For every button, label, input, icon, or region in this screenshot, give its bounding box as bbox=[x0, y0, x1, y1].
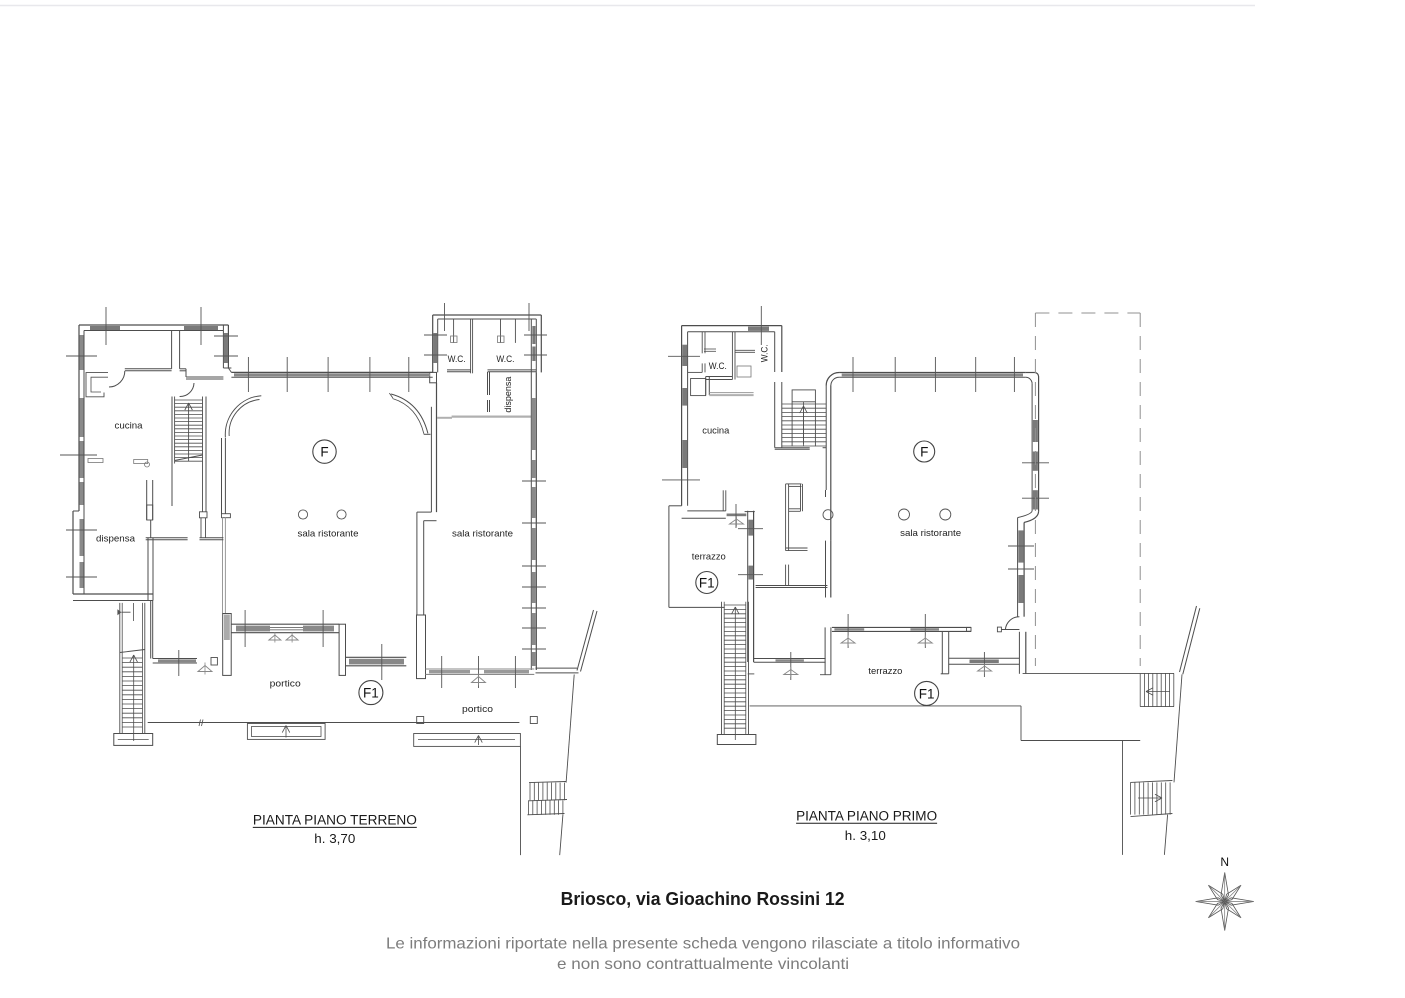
svg-text:N: N bbox=[1220, 855, 1229, 869]
svg-text:sala ristorante: sala ristorante bbox=[900, 528, 961, 539]
svg-text:h. 3,70: h. 3,70 bbox=[314, 831, 355, 846]
svg-text:portico: portico bbox=[270, 678, 301, 689]
svg-text:F: F bbox=[320, 445, 328, 460]
svg-text:W.C.: W.C. bbox=[496, 354, 514, 364]
svg-text:W.C.: W.C. bbox=[760, 344, 770, 362]
svg-text:sala ristorante: sala ristorante bbox=[298, 529, 359, 540]
svg-text:PIANTA PIANO TERRENO: PIANTA PIANO TERRENO bbox=[253, 813, 417, 828]
svg-text:PIANTA PIANO PRIMO: PIANTA PIANO PRIMO bbox=[796, 808, 937, 823]
svg-text:e non sono contrattualmente vi: e non sono contrattualmente vincolanti bbox=[557, 956, 849, 973]
svg-text:cucina: cucina bbox=[115, 421, 144, 432]
svg-text:cucina: cucina bbox=[702, 425, 730, 436]
svg-text:terrazzo: terrazzo bbox=[868, 666, 902, 677]
svg-text:F1: F1 bbox=[699, 576, 715, 591]
svg-text:F1: F1 bbox=[919, 686, 935, 701]
svg-text:terrazzo: terrazzo bbox=[692, 551, 726, 562]
svg-text:W.C.: W.C. bbox=[448, 354, 466, 364]
svg-text:dispensa: dispensa bbox=[96, 534, 136, 545]
svg-text:W.C.: W.C. bbox=[709, 361, 727, 371]
svg-text:Briosco, via Gioachino Rossini: Briosco, via Gioachino Rossini 12 bbox=[561, 889, 845, 909]
svg-text:F: F bbox=[920, 445, 928, 460]
svg-text:h. 3,10: h. 3,10 bbox=[845, 828, 886, 843]
svg-text:sala ristorante: sala ristorante bbox=[452, 529, 513, 540]
svg-text:F1: F1 bbox=[363, 686, 379, 701]
svg-text:dispensa: dispensa bbox=[503, 377, 513, 413]
svg-text:portico: portico bbox=[462, 704, 493, 715]
svg-text:Le informazioni riportate nell: Le informazioni riportate nella presente… bbox=[386, 935, 1020, 952]
